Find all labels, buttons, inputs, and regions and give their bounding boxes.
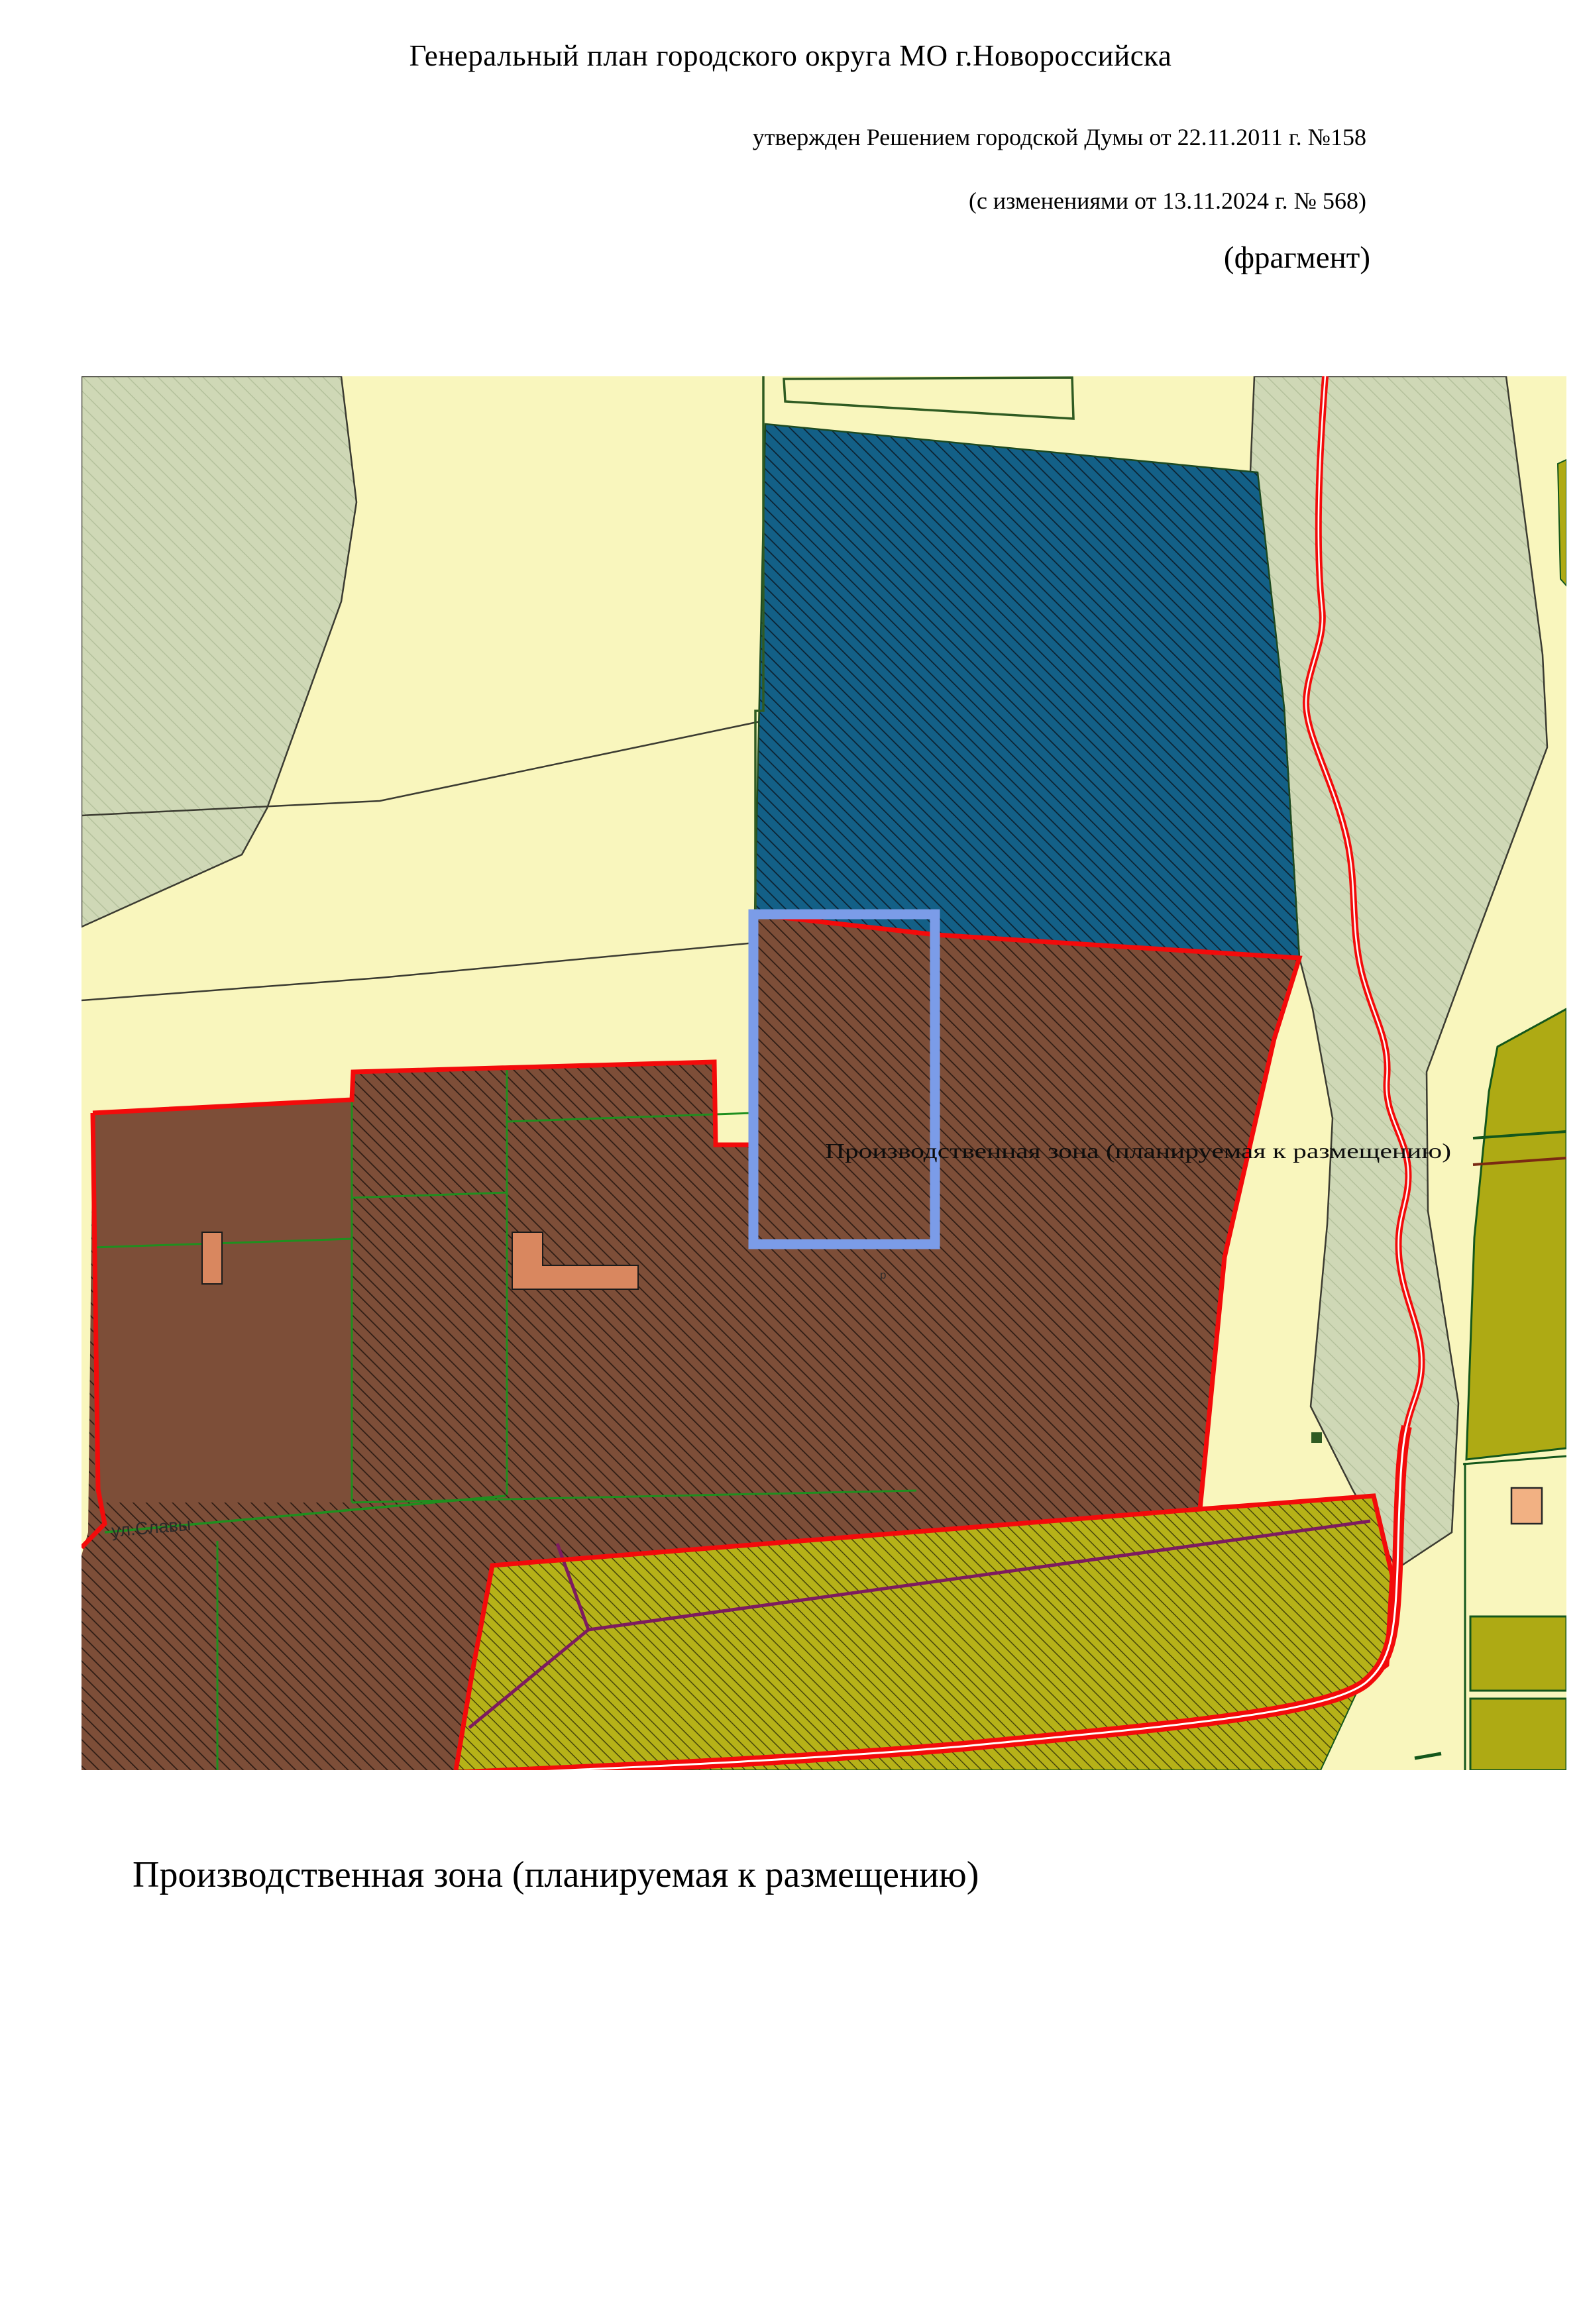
teal-hatched-zone <box>755 424 1299 958</box>
amendment-line: (с изменениями от 13.11.2024 г. № 568) <box>969 187 1366 215</box>
document-title: Генеральный план городского округа МО г.… <box>0 38 1581 73</box>
brown-solid-parcel <box>93 1100 352 1503</box>
bottom-caption: Производственная зона (планируемая к раз… <box>133 1854 979 1896</box>
zone-overlay-label: Производственная зона (планируемая к раз… <box>825 1139 1451 1163</box>
fragment-label: (фрагмент) <box>1224 240 1370 276</box>
salmon-building-right <box>1511 1488 1542 1524</box>
small-building <box>202 1232 222 1284</box>
general-plan-map: Производственная зона (планируемая к раз… <box>82 376 1566 1770</box>
green-square-mark <box>1311 1432 1322 1443</box>
map-canvas: Производственная зона (планируемая к раз… <box>82 376 1566 1770</box>
approval-line: утвержден Решением городской Думы от 22.… <box>753 123 1366 151</box>
document-page: Генеральный план городского округа МО г.… <box>0 0 1581 2324</box>
parcel-mark-label: р <box>880 1269 886 1281</box>
